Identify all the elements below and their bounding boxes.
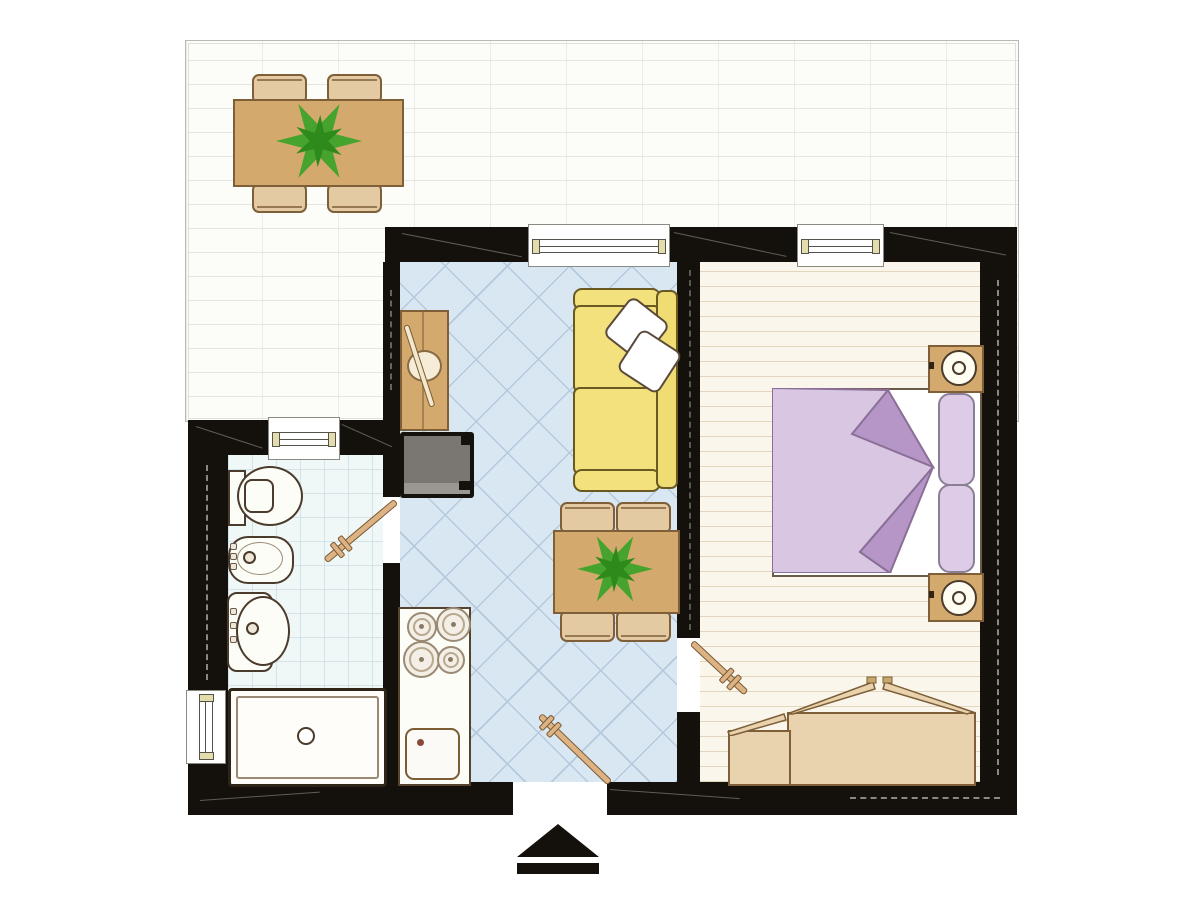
window-cap [872, 239, 880, 254]
table-lamp [941, 580, 977, 616]
stove-burner [403, 641, 440, 678]
window-sash [199, 695, 213, 759]
kitchen-sink [405, 728, 460, 780]
bathroom-side-window [186, 690, 226, 764]
window-cap [272, 432, 280, 447]
entrance-arrow-bar [517, 863, 599, 874]
potted-plant [276, 98, 362, 184]
bidet-drain [243, 551, 256, 564]
bedroom-cabinet [728, 730, 791, 786]
bidet-tap [230, 563, 237, 570]
floor-plan-canvas [0, 0, 1200, 900]
wall-dashed-line [390, 290, 392, 390]
wall-dashed-line [997, 280, 999, 775]
table-lamp [941, 350, 977, 386]
bathtub-drain [297, 727, 315, 745]
tv-knob [459, 481, 471, 490]
kitchen-sink-tap [417, 739, 424, 746]
terrace-chair [252, 183, 307, 213]
terrace-chair [327, 183, 382, 213]
window-cap [801, 239, 809, 254]
bidet-tap [230, 553, 237, 560]
nightstand-knob [929, 591, 934, 598]
toilet-flush [244, 479, 274, 513]
stove-burner [437, 646, 465, 674]
wall-top [385, 227, 1017, 262]
living-chair [560, 610, 615, 642]
window-cap [658, 239, 666, 254]
cabinet-open-door [724, 708, 792, 736]
living-chair [616, 610, 671, 642]
entrance-opening [513, 782, 607, 815]
entrance-arrow-icon [517, 824, 599, 857]
window-cap [328, 432, 336, 447]
washbasin-drain [246, 622, 259, 635]
washbasin-tap [230, 608, 237, 615]
potted-plant [577, 531, 653, 607]
window-sash [273, 432, 335, 446]
window-sash [802, 239, 879, 253]
sofa-cushion [573, 387, 661, 475]
bathtub [228, 688, 387, 787]
bathroom-window [268, 417, 340, 460]
wall-dashed-line [206, 465, 208, 680]
stove-burner [407, 612, 437, 642]
bedroom-window [797, 224, 884, 267]
wall-dashed-line [689, 270, 691, 630]
sofa-armrest-bottom [573, 469, 661, 492]
nightstand-knob [929, 362, 934, 369]
window-cap [199, 694, 214, 702]
bed-pillow [938, 484, 975, 573]
washbasin-tap [230, 636, 237, 643]
tv-knob [461, 436, 471, 445]
wardrobe [787, 712, 976, 786]
window-cap [532, 239, 540, 254]
living-room-window [528, 224, 670, 267]
bed-pillow [938, 393, 975, 486]
window-sash [533, 239, 665, 253]
washbasin-bowl [236, 596, 290, 666]
wardrobe-open-doors [783, 676, 977, 716]
bidet-tap [230, 543, 237, 550]
wall-dashed-line [850, 797, 1000, 799]
stove-burner [436, 607, 471, 642]
washbasin-tap [230, 622, 237, 629]
window-cap [199, 752, 214, 760]
